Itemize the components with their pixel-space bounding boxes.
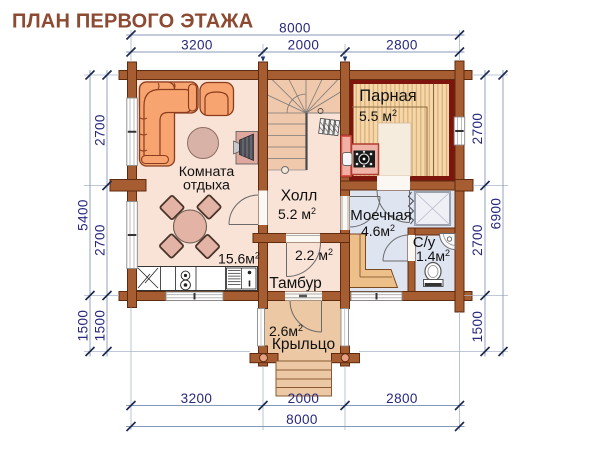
svg-text:Парная: Парная (359, 87, 416, 105)
svg-text:2000: 2000 (288, 38, 320, 53)
svg-text:6900: 6900 (489, 198, 504, 230)
svg-text:15.6м2: 15.6м2 (218, 251, 260, 267)
svg-text:2700: 2700 (470, 224, 485, 256)
svg-text:2700: 2700 (470, 113, 485, 145)
svg-text:2800: 2800 (386, 38, 418, 53)
svg-text:2700: 2700 (93, 224, 108, 256)
svg-text:2000: 2000 (288, 391, 320, 406)
svg-text:Холл: Холл (281, 188, 318, 205)
svg-text:5.5 м2: 5.5 м2 (359, 108, 397, 124)
svg-text:4.6м2: 4.6м2 (361, 223, 395, 239)
svg-text:Крыльцо: Крыльцо (272, 336, 335, 353)
svg-text:3200: 3200 (181, 391, 213, 406)
svg-text:5400: 5400 (76, 199, 91, 231)
svg-text:8000: 8000 (279, 21, 311, 36)
svg-text:5.2 м2: 5.2 м2 (278, 206, 316, 222)
svg-text:2800: 2800 (386, 391, 418, 406)
svg-text:8000: 8000 (286, 412, 318, 427)
svg-text:1500: 1500 (93, 310, 108, 342)
svg-text:2.2 м2: 2.2 м2 (295, 247, 333, 263)
svg-text:отдыха: отдыха (183, 178, 230, 194)
svg-text:2700: 2700 (93, 114, 108, 146)
svg-text:1.4м2: 1.4м2 (416, 248, 450, 264)
svg-text:3200: 3200 (181, 38, 213, 53)
svg-text:1500: 1500 (76, 310, 91, 342)
svg-text:Моечная: Моечная (350, 207, 411, 224)
svg-text:ПЛАН ПЕРВОГО ЭТАЖА: ПЛАН ПЕРВОГО ЭТАЖА (12, 11, 253, 33)
svg-text:1500: 1500 (470, 311, 485, 343)
svg-text:Тамбур: Тамбур (269, 275, 322, 292)
